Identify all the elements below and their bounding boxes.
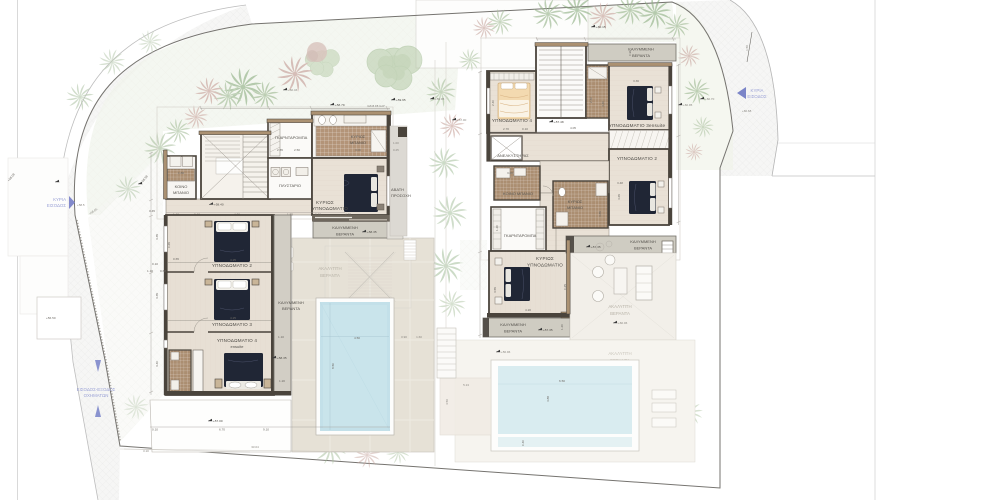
svg-text:2.40: 2.40: [589, 97, 593, 103]
svg-text:ΟΧΗΜΑΤΩΝ: ΟΧΗΜΑΤΩΝ: [84, 393, 109, 398]
svg-text:ΕΙΣΟΔΟΣ: ΕΙΣΟΔΟΣ: [747, 94, 766, 99]
svg-text:1.00: 1.00: [393, 141, 399, 145]
svg-text:ΥΠΝΟΔΩΜΑΤΙΟ 4: ΥΠΝΟΔΩΜΑΤΙΟ 4: [217, 338, 258, 343]
svg-text:1.10: 1.10: [278, 335, 284, 339]
svg-text:ΚΟΙΝΟ: ΚΟΙΝΟ: [175, 184, 188, 189]
svg-text:+59.95: +59.95: [396, 98, 406, 102]
svg-text:33.04: 33.04: [251, 445, 259, 449]
svg-text:ΥΠΝΟΔΩΜΑΤΙΟ 3: ΥΠΝΟΔΩΜΑΤΙΟ 3: [212, 322, 253, 327]
svg-text:ΚΥΡΙΩΣ: ΚΥΡΙΩΣ: [351, 134, 366, 139]
svg-text:3.00: 3.00: [507, 171, 513, 175]
svg-text:0.10: 0.10: [522, 127, 528, 131]
svg-text:+57.48: +57.48: [554, 120, 564, 124]
svg-text:3.35: 3.35: [155, 293, 159, 299]
svg-text:ΠΡΟΣΟΧΗ: ΠΡΟΣΟΧΗ: [391, 193, 411, 198]
svg-text:ΑΚΑΛΥΠΤΗ: ΑΚΑΛΥΠΤΗ: [608, 351, 631, 356]
svg-text:1.50: 1.50: [745, 45, 749, 51]
svg-text:1.20: 1.20: [560, 324, 564, 330]
svg-text:ΒΕΡΑΝΤΑ: ΒΕΡΑΝΤΑ: [320, 273, 340, 278]
svg-text:ΕΙΣΟΔΟΣ: ΕΙΣΟΔΟΣ: [47, 203, 66, 208]
svg-text:ΥΠΝΟΔΩΜΑΤΙΟ 3ensuite: ΥΠΝΟΔΩΜΑΤΙΟ 3ensuite: [609, 123, 666, 128]
svg-text:ΥΠΝΟΔΩΜΑΤΙΟ: ΥΠΝΟΔΩΜΑΤΙΟ: [527, 263, 563, 268]
svg-text:0.68: 0.68: [160, 269, 166, 273]
svg-text:ΑΚΑΛΥΠΤΗ: ΑΚΑΛΥΠΤΗ: [608, 304, 631, 309]
svg-text:+59.95: +59.95: [435, 97, 445, 101]
svg-text:2.55: 2.55: [277, 148, 283, 152]
svg-text:8.50: 8.50: [331, 363, 335, 369]
svg-text:4.88: 4.88: [546, 396, 550, 402]
svg-text:0.25: 0.25: [393, 148, 399, 152]
svg-text:2.40: 2.40: [491, 100, 495, 106]
svg-text:ΚΑΛΥΜΜΕΝΗ: ΚΑΛΥΜΜΕΝΗ: [630, 239, 656, 244]
svg-text:ΒΕΡΑΝΤΑ: ΒΕΡΑΝΤΑ: [336, 232, 354, 237]
svg-text:0.65: 0.65: [173, 257, 179, 261]
svg-text:ΒΕΡΑΝΤΑ: ΒΕΡΑΝΤΑ: [610, 311, 630, 316]
svg-text:1.60: 1.60: [416, 335, 422, 339]
svg-text:4.50: 4.50: [445, 399, 449, 405]
svg-text:+60.15: +60.15: [596, 25, 606, 29]
svg-text:+58.79: +58.79: [335, 103, 345, 107]
svg-text:+60.70: +60.70: [705, 97, 715, 101]
svg-text:ΚΥΡΙΑ: ΚΥΡΙΑ: [53, 197, 66, 202]
svg-text:ΥΠΝΟΔΩΜΑΤΙΟ 4: ΥΠΝΟΔΩΜΑΤΙΟ 4: [492, 118, 533, 123]
svg-text:ensuite: ensuite: [231, 344, 245, 349]
svg-text:ΚΥΡΙΩΣ: ΚΥΡΙΩΣ: [568, 199, 583, 204]
svg-text:+58.5: +58.5: [77, 203, 85, 207]
svg-text:ΚΟΙΝΟ ΜΠΑΝΙΟ: ΚΟΙΝΟ ΜΠΑΝΙΟ: [503, 191, 533, 196]
svg-text:4.40: 4.40: [601, 101, 605, 107]
svg-text:0.90: 0.90: [401, 335, 407, 339]
svg-text:0.10: 0.10: [152, 428, 158, 432]
svg-text:+60.95: +60.95: [683, 103, 693, 107]
svg-text:ΠΛΥΣΤΑΡΙΟ: ΠΛΥΣΤΑΡΙΟ: [279, 183, 301, 188]
svg-text:+57.00: +57.00: [213, 419, 223, 423]
svg-text:ΕΙΣΟΔΟΣ-ΕΞΟΔΟΣ: ΕΙΣΟΔΟΣ-ΕΞΟΔΟΣ: [77, 387, 116, 392]
svg-text:0.65: 0.65: [167, 242, 171, 248]
svg-text:ΥΠΝΟΔΩΜΑΤΙΟ 2: ΥΠΝΟΔΩΜΑΤΙΟ 2: [212, 263, 253, 268]
svg-text:ΑΒΑΤΗ: ΑΒΑΤΗ: [391, 187, 404, 192]
svg-text:0.90: 0.90: [628, 50, 632, 56]
svg-text:ΚΥΡΙΩΣ: ΚΥΡΙΩΣ: [316, 200, 334, 205]
svg-text:+56.96: +56.96: [501, 350, 511, 354]
svg-text:ΒΕΡΑΝΤΑ: ΒΕΡΑΝΤΑ: [282, 306, 300, 311]
svg-text:ΥΠΝΟΔΩΜΑΤΙΟ 2: ΥΠΝΟΔΩΜΑΤΙΟ 2: [617, 156, 658, 161]
svg-text:2.50: 2.50: [294, 148, 300, 152]
svg-text:6.70: 6.70: [219, 428, 225, 432]
svg-text:+60.46: +60.46: [288, 88, 298, 92]
svg-text:1.20: 1.20: [495, 225, 499, 231]
svg-text:3.48: 3.48: [617, 181, 623, 185]
svg-text:2.70: 2.70: [503, 127, 509, 131]
svg-text:9.10: 9.10: [263, 428, 269, 432]
svg-text:3.85: 3.85: [598, 211, 602, 217]
svg-text:ΒΕΡΑΝΤΑ: ΒΕΡΑΝΤΑ: [504, 329, 522, 334]
svg-text:+57.00: +57.00: [457, 118, 467, 122]
svg-text:+56.50: +56.50: [46, 316, 56, 320]
svg-text:+58.35: +58.35: [367, 230, 377, 234]
svg-text:0.40: 0.40: [521, 440, 525, 446]
svg-text:ΥΠΝΟΔΩΜΑΤΙΟ: ΥΠΝΟΔΩΜΑΤΙΟ: [312, 206, 348, 211]
svg-text:ΓΚΑΡΝΤΑΡΟΜΠΑ: ΓΚΑΡΝΤΑΡΟΜΠΑ: [275, 135, 308, 140]
svg-text:ΜΠΑΝΙΟ: ΜΠΑΝΙΟ: [350, 140, 366, 145]
svg-text:0.45: 0.45: [149, 209, 155, 213]
svg-text:ΚΥΡΙΩΣ: ΚΥΡΙΩΣ: [536, 256, 554, 261]
svg-text:3.36: 3.36: [633, 79, 639, 83]
svg-text:ΒΕΡΑΝΤΑ: ΒΕΡΑΝΤΑ: [632, 53, 650, 58]
svg-text:+58.40: +58.40: [214, 203, 224, 207]
svg-text:ΒΕΡΑΝΤΑ: ΒΕΡΑΝΤΑ: [634, 246, 652, 251]
svg-text:ΜΠΑΝΙΟ: ΜΠΑΝΙΟ: [173, 190, 189, 195]
svg-text:+60.68: +60.68: [742, 109, 752, 113]
svg-text:ΚΑΛΥΜΜΕΝΗ: ΚΑΛΥΜΜΕΝΗ: [628, 47, 654, 52]
svg-text:ΑΚΑΛΥΠΤΗ: ΑΚΑΛΥΠΤΗ: [318, 266, 341, 271]
svg-text:ΑΝΕΛΚΥΣΤΗΡΑΣ: ΑΝΕΛΚΥΣΤΗΡΑΣ: [497, 153, 529, 158]
svg-text:3.55: 3.55: [493, 287, 497, 293]
svg-text:ΓΚΑΡΝΤΑΡΟΜΠΑ: ΓΚΑΡΝΤΑΡΟΜΠΑ: [504, 233, 537, 238]
svg-text:ΚΑΛΥΜΜΕΝΗ: ΚΑΛΥΜΜΕΝΗ: [332, 225, 358, 230]
svg-text:ΜΠΑΝΙΟ: ΜΠΑΝΙΟ: [567, 205, 583, 210]
svg-text:ΚΑΛΥΜΜΕΝΗ: ΚΑΛΥΜΜΕΝΗ: [278, 300, 304, 305]
svg-text:4.25: 4.25: [230, 258, 236, 262]
svg-text:5.13: 5.13: [463, 383, 469, 387]
svg-text:4.05: 4.05: [570, 126, 576, 130]
svg-text:+60.06: +60.06: [618, 321, 628, 325]
svg-text:+57.35: +57.35: [543, 328, 553, 332]
svg-text:G3 8.15 G.P: G3 8.15 G.P: [367, 104, 384, 108]
svg-text:1.88: 1.88: [178, 171, 184, 175]
svg-text:3.35: 3.35: [155, 234, 159, 240]
svg-text:4.20: 4.20: [525, 308, 531, 312]
svg-text:ΚΥΡΙΑ: ΚΥΡΙΑ: [751, 88, 764, 93]
svg-text:3.00: 3.00: [355, 148, 361, 152]
svg-text:+58.35: +58.35: [277, 356, 287, 360]
svg-text:0.10: 0.10: [152, 262, 158, 266]
svg-text:4.65: 4.65: [617, 194, 621, 200]
svg-text:ΚΑΛΥΜΜΕΝΗ: ΚΑΛΥΜΜΕΝΗ: [500, 322, 526, 327]
svg-text:6.50: 6.50: [559, 379, 565, 383]
svg-text:4.25: 4.25: [230, 316, 236, 320]
svg-text:1.20: 1.20: [279, 379, 285, 383]
svg-text:3.40: 3.40: [155, 361, 159, 367]
